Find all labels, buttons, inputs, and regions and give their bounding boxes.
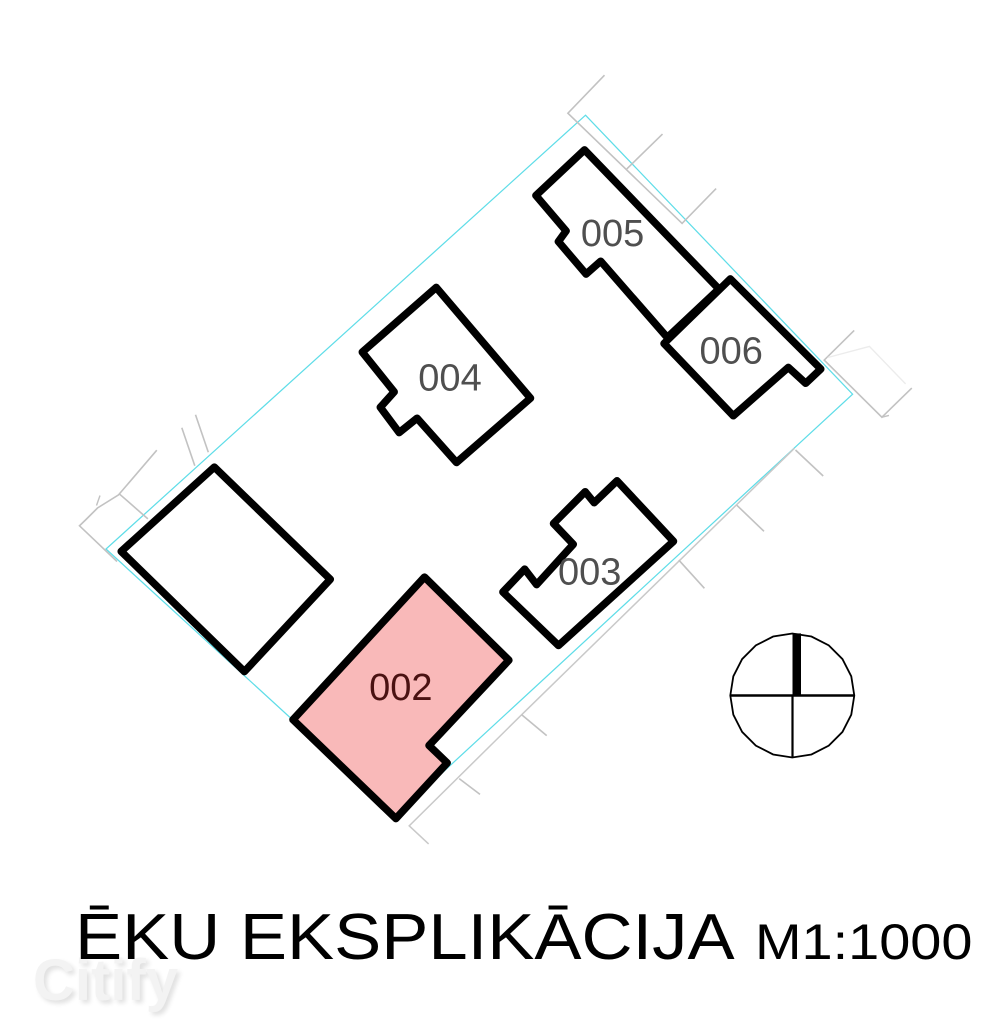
svg-text:006: 006 [699,331,762,373]
svg-text:005: 005 [581,213,644,255]
svg-text:003: 003 [558,552,621,594]
svg-text:004: 004 [418,358,481,400]
svg-text:M1:1000: M1:1000 [755,915,972,971]
svg-text:002: 002 [369,667,432,709]
svg-text:ĒKU EKSPLIKĀCIJA: ĒKU EKSPLIKĀCIJA [75,902,735,974]
